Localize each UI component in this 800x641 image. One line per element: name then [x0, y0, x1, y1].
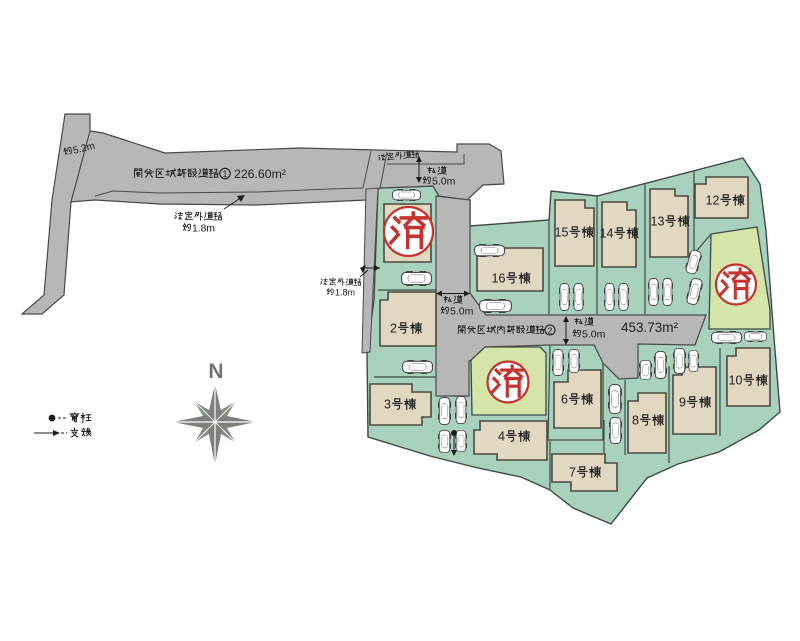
svg-text:7: 7 [569, 466, 576, 480]
svg-text:5.0m: 5.0m [582, 329, 606, 341]
svg-text:1.8m: 1.8m [192, 224, 215, 235]
svg-text:226.60m²: 226.60m² [234, 167, 286, 181]
svg-text:1: 1 [222, 169, 227, 179]
svg-text:15: 15 [555, 226, 569, 240]
svg-text:9: 9 [679, 396, 686, 410]
svg-text:14: 14 [600, 227, 614, 241]
svg-text:2: 2 [548, 326, 553, 336]
svg-text:5.0m: 5.0m [432, 176, 456, 188]
svg-text:453.73m²: 453.73m² [621, 320, 679, 335]
svg-text:10: 10 [729, 374, 743, 388]
svg-text:13: 13 [651, 215, 665, 229]
svg-text:12: 12 [706, 194, 720, 208]
svg-text:16: 16 [492, 272, 506, 286]
svg-text:6: 6 [561, 393, 568, 407]
svg-text:2: 2 [390, 322, 397, 336]
svg-text:4: 4 [498, 430, 505, 444]
svg-text:N: N [208, 360, 223, 383]
svg-text:5.0m: 5.0m [450, 306, 474, 318]
svg-text:1.8m: 1.8m [335, 288, 355, 298]
svg-text:8: 8 [632, 414, 639, 428]
svg-text:3: 3 [384, 398, 391, 412]
